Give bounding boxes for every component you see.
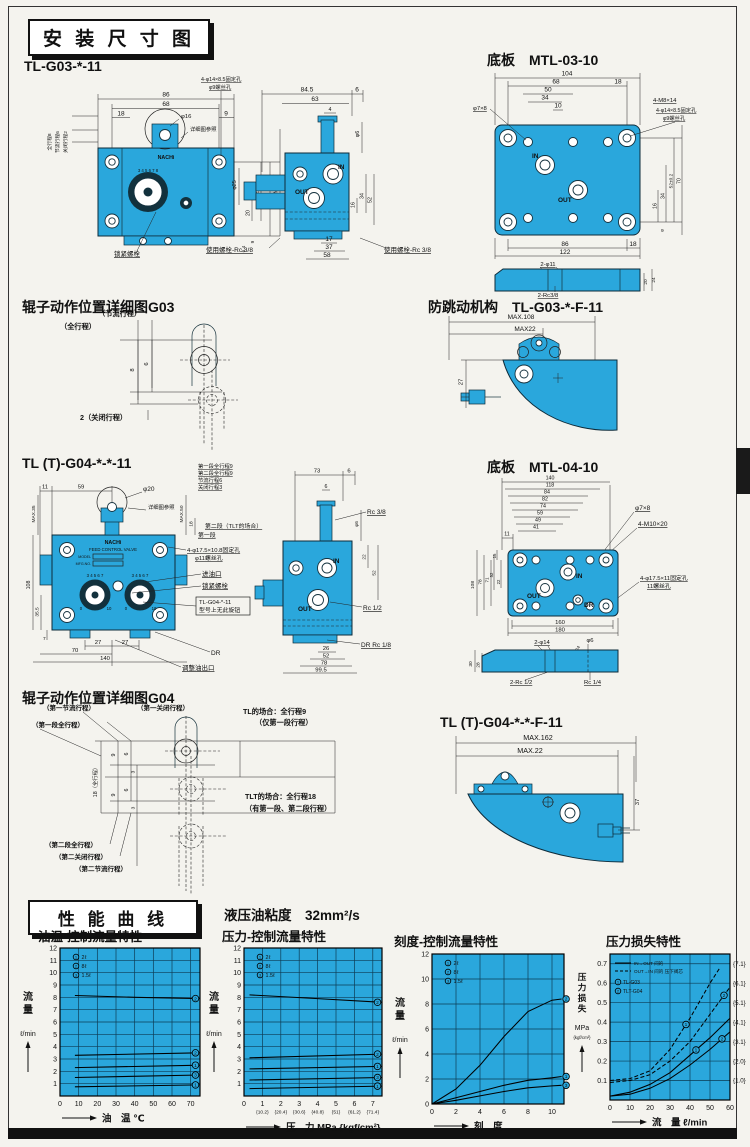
dim-label: 10 xyxy=(554,103,562,110)
callout-label: φ9螺丝孔 xyxy=(209,83,232,91)
dim-label: 9 xyxy=(111,793,117,796)
x-axis-label: 刻 度 xyxy=(474,1121,503,1133)
plate03-section-view: 2-φ11 20 24 2-Rc3/8 xyxy=(495,262,657,299)
dim-label: 18（全行程） xyxy=(91,765,99,797)
antijump03-shapes xyxy=(461,335,617,430)
dim-label: 6 xyxy=(144,362,150,366)
port-label: OUT xyxy=(295,189,309,196)
valve-type-label: FEED CONTROL VALVE xyxy=(89,547,137,552)
y-tick-label: 11 xyxy=(50,958,57,965)
x-tick-label: 60 xyxy=(168,1101,176,1108)
legend-label: 2ℓ xyxy=(454,961,459,967)
brand-logo: NACHi xyxy=(158,155,175,161)
chart-pressure-loss: 01020304050600.1{1.0}0.2{2.0}0.3{3.1}0.4… xyxy=(570,946,748,1146)
y-tick-label: 1 xyxy=(53,1081,57,1088)
g03-side-view: IN OUT xyxy=(244,116,386,248)
y-tick-label: 2 xyxy=(53,1069,57,1076)
x-tick-sublabel: {10.2} xyxy=(256,1110,269,1116)
callout-label: Rc 1/4 xyxy=(584,680,602,686)
dim-label: 15 xyxy=(492,553,497,558)
x-tick-label: 0 xyxy=(430,1109,434,1116)
dim-label: 20 xyxy=(643,279,649,285)
callout-label: 详细图参照 xyxy=(148,503,175,511)
x-tick-label: 1 xyxy=(260,1101,264,1108)
dial-digits: 3 4 5 6 7 xyxy=(87,573,104,578)
g04-side-view: IN OUT xyxy=(255,501,352,643)
stroke-label: 第一段全行程9 xyxy=(198,462,233,470)
dim-label: 34 xyxy=(661,193,667,199)
y-tick-right-label: {4.1} xyxy=(733,1019,746,1026)
stroke-label: （第一节流行程） xyxy=(43,703,95,712)
dim-label: 52 xyxy=(372,570,378,576)
y-tick-right-label: {7.1} xyxy=(733,961,746,968)
x-tick-label: 6 xyxy=(502,1109,506,1116)
dim-label: 104 xyxy=(562,71,573,78)
stroke-label: （第一关闭行程） xyxy=(137,703,189,712)
port-label: IN xyxy=(532,153,539,160)
y-tick-right-label: {6.1} xyxy=(733,980,746,987)
dial-digits: 3 4 5 6 7 8 xyxy=(138,168,159,173)
x-tick-label: 50 xyxy=(149,1101,157,1108)
dim-label: 9 xyxy=(224,111,228,118)
stroke-label: （第一段全行程） xyxy=(32,720,84,729)
series-marker-digit: 1 xyxy=(376,1064,379,1070)
chart-scale-flow: 024681002468101221312ℓ28ℓ31.5ℓ刻 度流量ℓ/min xyxy=(386,946,570,1146)
x-tick-label: 2 xyxy=(454,1109,458,1116)
callout-label: φ7×8 xyxy=(635,505,651,512)
callout-label: 4-φ14×8.5固定孔 xyxy=(656,106,697,114)
dim-label: 7 xyxy=(43,636,46,642)
y-tick-label: 11 xyxy=(234,958,241,965)
callout-label: Rc 1/2 xyxy=(363,605,382,612)
series-marker-digit: 3 xyxy=(565,1083,568,1089)
legend-label: 8ℓ xyxy=(454,970,459,976)
y-tick-label: 4 xyxy=(237,1044,241,1051)
catalog-page: 安 装 尺 寸 图 TL-G03-*-11 底板 MTL-03-10 辊子动作位… xyxy=(0,0,750,1147)
dim-label: 84.5 xyxy=(301,87,314,94)
plate04-dimensions-bottom: 160 180 xyxy=(508,618,618,636)
y-axis-unit: MPa xyxy=(575,1025,590,1032)
callout-label: φ7×8 xyxy=(473,106,488,112)
legend-label: 8ℓ xyxy=(82,964,87,970)
callout-label: 使用螺栓-Rc 3/8 xyxy=(384,245,431,254)
y-tick-label: 0.3 xyxy=(597,1039,607,1046)
y-tick-label: 0.4 xyxy=(597,1020,607,1027)
legend-label: 2ℓ xyxy=(266,955,271,961)
port-label: OUT xyxy=(527,593,541,600)
x-axis-label: 压 力 MPa {kgf/cm²} xyxy=(286,1122,381,1134)
callout-label: 锁紧螺栓 xyxy=(114,249,141,258)
y-tick-label: 0.1 xyxy=(597,1078,607,1085)
dim-label: 70 xyxy=(72,648,79,654)
note-label: 型号上无此旋钮 xyxy=(199,606,240,614)
x-tick-label: 2 xyxy=(279,1101,283,1108)
port-label: DR xyxy=(584,602,594,609)
stroke-label: （第二节流行程） xyxy=(75,864,127,873)
dim-label: 16 xyxy=(653,203,659,209)
x-tick-sublabel: {61.2} xyxy=(348,1110,361,1116)
dim-label: 18 xyxy=(189,521,195,527)
y-tick-label: 9 xyxy=(53,983,57,990)
dim-label: MAX.50 xyxy=(179,505,185,522)
y-tick-label: 0.2 xyxy=(597,1059,607,1066)
legend-label: 1.5ℓ xyxy=(454,979,463,985)
x-tick-label: 70 xyxy=(187,1101,195,1108)
y-tick-label: 6 xyxy=(237,1020,241,1027)
x-tick-label: 0 xyxy=(608,1105,612,1112)
antijump04-shapes xyxy=(468,772,630,862)
dim-label: 74 xyxy=(540,504,546,510)
g03-dimension-drawing: NACHi 3 4 5 6 7 8 86 68 18 9 φ16 详细图参照 4… xyxy=(18,72,480,274)
dial-digits: 3 4 5 6 7 xyxy=(132,573,149,578)
y-axis-label: 量 xyxy=(209,1003,219,1016)
x-tick-label: 20 xyxy=(646,1105,654,1112)
y-tick-label: 7 xyxy=(53,1007,57,1014)
dim-label: 18 xyxy=(629,241,637,248)
legend-label: 1.5ℓ xyxy=(82,973,91,979)
callout-label: Rc 3/8 xyxy=(367,509,386,516)
x-tick-label: 20 xyxy=(93,1101,101,1108)
y-tick-label: 5 xyxy=(53,1032,57,1039)
dim-label: 3 xyxy=(131,770,137,773)
callout-label: φ16 xyxy=(181,114,192,120)
y-tick-right-label: {2.0} xyxy=(733,1058,746,1065)
viscosity-note: 液压油粘度 32mm²/s xyxy=(224,904,360,924)
port-label: IN xyxy=(333,558,340,565)
x-tick-sublabel: {40.8} xyxy=(311,1110,324,1116)
dim-label: 70 xyxy=(677,178,683,184)
y-tick-label: 6 xyxy=(53,1020,57,1027)
dim-label: 11 xyxy=(504,532,510,538)
x-tick-label: 6 xyxy=(352,1101,356,1108)
x-tick-label: 40 xyxy=(686,1105,694,1112)
x-tick-label: 4 xyxy=(316,1101,320,1108)
dim-label: 28 xyxy=(476,662,482,668)
series-marker-digit: 2 xyxy=(194,996,197,1002)
dim-label: 34 xyxy=(541,95,549,102)
x-tick-label: 0 xyxy=(242,1101,246,1108)
stroke-label: 关闭行程2 xyxy=(62,131,69,153)
note-label: TL的场合：全行程9 xyxy=(243,707,306,716)
dim-label: 52 xyxy=(489,572,494,577)
dim-label: 17 xyxy=(325,236,333,243)
y-tick-label: 12 xyxy=(233,946,241,953)
y-axis-unit: ℓ/min xyxy=(19,1031,36,1038)
legend-label: IN→OUT 间的 xyxy=(634,960,664,967)
y-axis-label: 失 xyxy=(578,1003,587,1014)
dim-label: φ25 xyxy=(232,180,238,189)
dim-label: 9 xyxy=(661,228,664,234)
stroke-label: （全行程） xyxy=(60,322,96,331)
note-label: （仅第一段行程） xyxy=(255,718,313,727)
x-tick-sublabel: {30.6} xyxy=(293,1110,306,1116)
y-tick-label: 10 xyxy=(49,970,57,977)
dim-label: 68 xyxy=(552,79,560,86)
callout-label: DR Rc 1/8 xyxy=(361,642,391,649)
section-title-dimensions: 安 装 尺 寸 图 xyxy=(28,19,210,56)
x-tick-label: 4 xyxy=(478,1109,482,1116)
dim-label: 18 xyxy=(614,79,622,86)
dim-label: 30 xyxy=(468,661,474,667)
dim-label: 22 xyxy=(362,554,368,560)
legend-label: TL-G03 xyxy=(623,980,640,986)
dim-label: φ6 xyxy=(354,521,360,527)
dim-label: 18 xyxy=(117,111,125,118)
y-tick-label: 3 xyxy=(237,1057,241,1064)
dim-label: φ6 xyxy=(355,131,361,137)
series-marker-digit: 1 xyxy=(194,1063,197,1069)
dim-label: 6 xyxy=(124,752,130,755)
y-axis-unit2: {kgf/cm²} xyxy=(573,1035,591,1040)
brand-logo: NACHi xyxy=(105,540,122,546)
callout-label: 4-φ17.5×11固定孔 xyxy=(640,574,688,582)
x-tick-sublabel: {51} xyxy=(332,1110,341,1116)
y-tick-label: 5 xyxy=(237,1032,241,1039)
dim-label: 82 xyxy=(542,497,548,503)
y-axis-label: 流 xyxy=(395,996,405,1009)
dim-label: 108 xyxy=(470,581,476,589)
y-tick-label: 8 xyxy=(425,1002,429,1009)
dim-label: 9 xyxy=(111,753,117,756)
legend-label: TLT-G04 xyxy=(623,989,643,995)
dim-label: 4 xyxy=(329,107,332,113)
x-tick-label: 50 xyxy=(706,1105,714,1112)
callout-label: 调整油出口 xyxy=(182,663,215,672)
callout-label: 4-φ14×8.5固定孔 xyxy=(201,75,242,83)
series-marker-digit: 2 xyxy=(723,993,726,999)
y-axis-label: 损 xyxy=(578,992,587,1003)
dim-label: 35.5 xyxy=(35,607,41,617)
dim-label: 78 xyxy=(478,579,484,585)
plate-mtl0410-drawing: 140 118 84 82 74 59 49 41 11 φ7×8 4-M10×… xyxy=(450,460,750,700)
dim-label: 6 xyxy=(347,469,351,475)
y-axis-label: 量 xyxy=(395,1009,405,1022)
dim-label: 160 xyxy=(555,620,566,626)
dim-label: 34 xyxy=(360,193,366,199)
dim-label: 49 xyxy=(535,518,541,524)
y-tick-label: 1 xyxy=(237,1081,241,1088)
stroke-label: 节流行程6 xyxy=(54,131,61,153)
callout-label: 4-M10×20 xyxy=(638,521,668,528)
port-label: IN xyxy=(338,164,345,171)
plate04-top-view: IN OUT DR xyxy=(508,550,618,616)
legend-label: 1.5ℓ xyxy=(266,973,275,979)
series-marker-digit: 2 xyxy=(721,1037,724,1043)
stroke-label: 2（关闭行程） xyxy=(80,413,127,422)
dim-label: 140 xyxy=(100,656,111,662)
x-tick-sublabel: {71.4} xyxy=(367,1110,380,1116)
dim-label: 99.5 xyxy=(315,668,327,674)
chart-oil-temp-flow: 0102030405060701234567891011122213112ℓ28… xyxy=(14,942,206,1142)
note-label: TL-G04-*-11 xyxy=(199,600,231,606)
dim-label: 27 xyxy=(459,379,465,386)
dim-label: 20 xyxy=(246,210,252,216)
y-tick-label: 12 xyxy=(421,952,429,959)
dim-label: 41 xyxy=(533,525,539,531)
y-tick-right-label: {5.1} xyxy=(733,1000,746,1007)
callout-label: 2-Rc 1/2 xyxy=(510,680,532,686)
series-marker-digit: 1 xyxy=(194,1083,197,1089)
dim-label: 122 xyxy=(560,249,571,256)
port-label: OUT xyxy=(558,197,572,204)
y-tick-label: 6 xyxy=(425,1027,429,1034)
stroke-label: 第二段全行程9 xyxy=(198,469,233,477)
y-axis-unit: ℓ/min xyxy=(205,1031,222,1038)
y-axis-label: 流 xyxy=(209,990,219,1003)
stroke-label: 节流行程6 xyxy=(198,476,222,484)
callout-label: 进油口 xyxy=(202,569,222,578)
y-axis-label: 压 xyxy=(578,972,587,982)
legend-label: OUT→IN 间的 压下阀芯 xyxy=(634,968,683,975)
x-tick-label: 0 xyxy=(58,1101,62,1108)
dim-label: 118 xyxy=(546,483,554,489)
y-tick-label: 10 xyxy=(233,970,241,977)
callout-label: 详细图参照 xyxy=(190,125,217,133)
series-marker-digit: 1 xyxy=(376,1084,379,1090)
x-tick-label: 60 xyxy=(726,1105,734,1112)
dim-label: 8 xyxy=(130,368,136,372)
callout-label: 11螺丝孔 xyxy=(647,582,671,590)
x-tick-sublabel: {20.4} xyxy=(275,1110,288,1116)
dim-label: 22 xyxy=(496,579,501,584)
x-tick-label: 10 xyxy=(75,1101,83,1108)
dim-label: 68 xyxy=(162,101,170,108)
dim-label: 9 xyxy=(250,240,256,243)
port-label: OUT xyxy=(298,606,312,613)
y-tick-label: 0.5 xyxy=(597,1000,607,1007)
dim-label: 6 xyxy=(325,484,328,490)
x-tick-label: 30 xyxy=(666,1105,674,1112)
series-marker-digit: 1 xyxy=(565,1074,568,1080)
plate04-dimensions-left: 108 78 71 15 52 22 xyxy=(470,550,501,616)
callout-label: 4-φ17.5×10.8固定孔 xyxy=(187,546,240,554)
y-axis-label: 流 xyxy=(23,990,33,1003)
note-label: TLT的场合：全行程18 xyxy=(245,792,316,801)
dim-label: MAX22 xyxy=(514,326,536,333)
series-marker-digit: 3 xyxy=(194,1073,197,1079)
callout-label: 2-Rc3/8 xyxy=(538,293,559,299)
nameplate-label: MFG.NO. xyxy=(76,562,91,566)
x-tick-label: 10 xyxy=(626,1105,634,1112)
roller-shapes xyxy=(165,716,227,894)
y-axis-unit: ℓ/min xyxy=(391,1037,408,1044)
dim-label: 37 xyxy=(635,799,641,806)
stroke-label: 全行程8 xyxy=(46,133,53,150)
y-axis-label: 量 xyxy=(23,1003,33,1016)
y-tick-label: 4 xyxy=(53,1044,57,1051)
x-axis-label: 油 温 ℃ xyxy=(102,1113,145,1125)
dim-label: MAX.162 xyxy=(523,733,553,742)
series-marker-digit: 2 xyxy=(376,1052,379,1058)
dim-label: 6 xyxy=(124,788,130,791)
y-tick-label: 3 xyxy=(53,1057,57,1064)
y-tick-label: 4 xyxy=(425,1052,429,1059)
stroke-label: 关闭行程3 xyxy=(198,483,222,491)
callout-label: 第一段 xyxy=(198,531,216,539)
legend-label: 8ℓ xyxy=(266,964,271,970)
x-tick-label: 30 xyxy=(112,1101,120,1108)
dial-digit: 10 xyxy=(107,606,112,611)
dim-label: 52 xyxy=(323,654,330,660)
dim-label: MAX.35 xyxy=(31,505,37,522)
g04-dimension-drawing: NACHi FEED CONTROL VALVE MODEL MFG.NO. 3… xyxy=(15,460,485,698)
x-axis-label: 流 量 ℓ/min xyxy=(652,1117,708,1129)
series-marker-digit: 2 xyxy=(565,997,568,1003)
y-tick-label: 10 xyxy=(421,977,429,984)
series-marker-digit: 2 xyxy=(194,1051,197,1057)
callout-label: φ20 xyxy=(143,486,155,493)
dim-label: 86 xyxy=(162,92,170,99)
dim-label: 52 xyxy=(368,197,374,203)
dim-label: MAX.22 xyxy=(517,746,543,755)
y-tick-label: 0.6 xyxy=(597,981,607,988)
stroke-label: （第二段全行程） xyxy=(45,840,97,849)
dim-label: 59 xyxy=(78,485,85,491)
dim-label: 59 xyxy=(537,511,543,517)
stroke-label: （节流行程） xyxy=(98,309,141,318)
x-tick-label: 7 xyxy=(371,1101,375,1108)
port-label: IN xyxy=(576,573,583,580)
plate04-section-view: 2-φ14 φ6 24 30 28 2-Rc 1/2 Rc 1/4 xyxy=(468,638,618,686)
dim-label: 52±0.2 xyxy=(669,173,675,188)
dim-label: 108 xyxy=(26,581,32,590)
y-tick-label: 9 xyxy=(237,983,241,990)
roller-shapes xyxy=(180,324,238,450)
y-tick-label: 8 xyxy=(237,995,241,1002)
stroke-label: （第二关闭行程） xyxy=(55,852,107,861)
legend-label: 2ℓ xyxy=(82,955,87,961)
antijump-g04-drawing: MAX.162 MAX.22 37 xyxy=(428,710,738,888)
x-tick-label: 8 xyxy=(526,1109,530,1116)
callout-label: φ6 xyxy=(586,638,594,644)
dim-label: 58 xyxy=(323,252,331,259)
port-label: DR xyxy=(211,650,221,657)
callout-label: 2-φ11 xyxy=(540,262,555,268)
y-tick-label: 2 xyxy=(237,1069,241,1076)
callout-label: 锁紧螺栓 xyxy=(202,581,229,590)
dim-label: 73 xyxy=(314,469,321,475)
y-tick-right-label: {1.0} xyxy=(733,1078,746,1085)
dim-label: 84 xyxy=(544,490,550,496)
dim-label: 86 xyxy=(561,241,569,248)
plate03-top-view: IN OUT xyxy=(495,125,640,235)
dim-label: 50 xyxy=(544,87,552,94)
y-tick-right-label: {3.1} xyxy=(733,1039,746,1046)
callout-label: φ9螺丝孔 xyxy=(663,114,686,122)
dim-label: 3 xyxy=(131,806,137,809)
antijump-g03-drawing: MAX.108 MAX22 27 xyxy=(425,310,640,458)
y-tick-label: 8 xyxy=(53,995,57,1002)
series-marker-digit: 1 xyxy=(685,1022,688,1028)
dial-digit: 10 xyxy=(152,606,157,611)
y-tick-label: 7 xyxy=(237,1007,241,1014)
callout-label: 第二段（TLT的场合） xyxy=(205,522,262,530)
dim-label: 11 xyxy=(42,485,48,491)
dim-label: 78 xyxy=(321,661,328,667)
x-tick-label: 3 xyxy=(297,1101,301,1108)
nameplate-label: MODEL xyxy=(78,555,91,559)
y-tick-label: 0.7 xyxy=(597,961,607,968)
dim-label: 63 xyxy=(311,96,319,103)
x-tick-label: 40 xyxy=(131,1101,139,1108)
y-tick-label: 0 xyxy=(425,1102,429,1109)
y-tick-label: 12 xyxy=(49,946,57,953)
dim-label: 6 xyxy=(355,87,359,94)
chart-pressure-flow: 01234567{10.2}{20.4}{30.6}{40.8}{51}{61.… xyxy=(200,942,388,1147)
callout-label: 4-M8×14 xyxy=(653,98,677,104)
series-marker-digit: 2 xyxy=(376,1000,379,1006)
dim-label: 140 xyxy=(546,476,555,482)
